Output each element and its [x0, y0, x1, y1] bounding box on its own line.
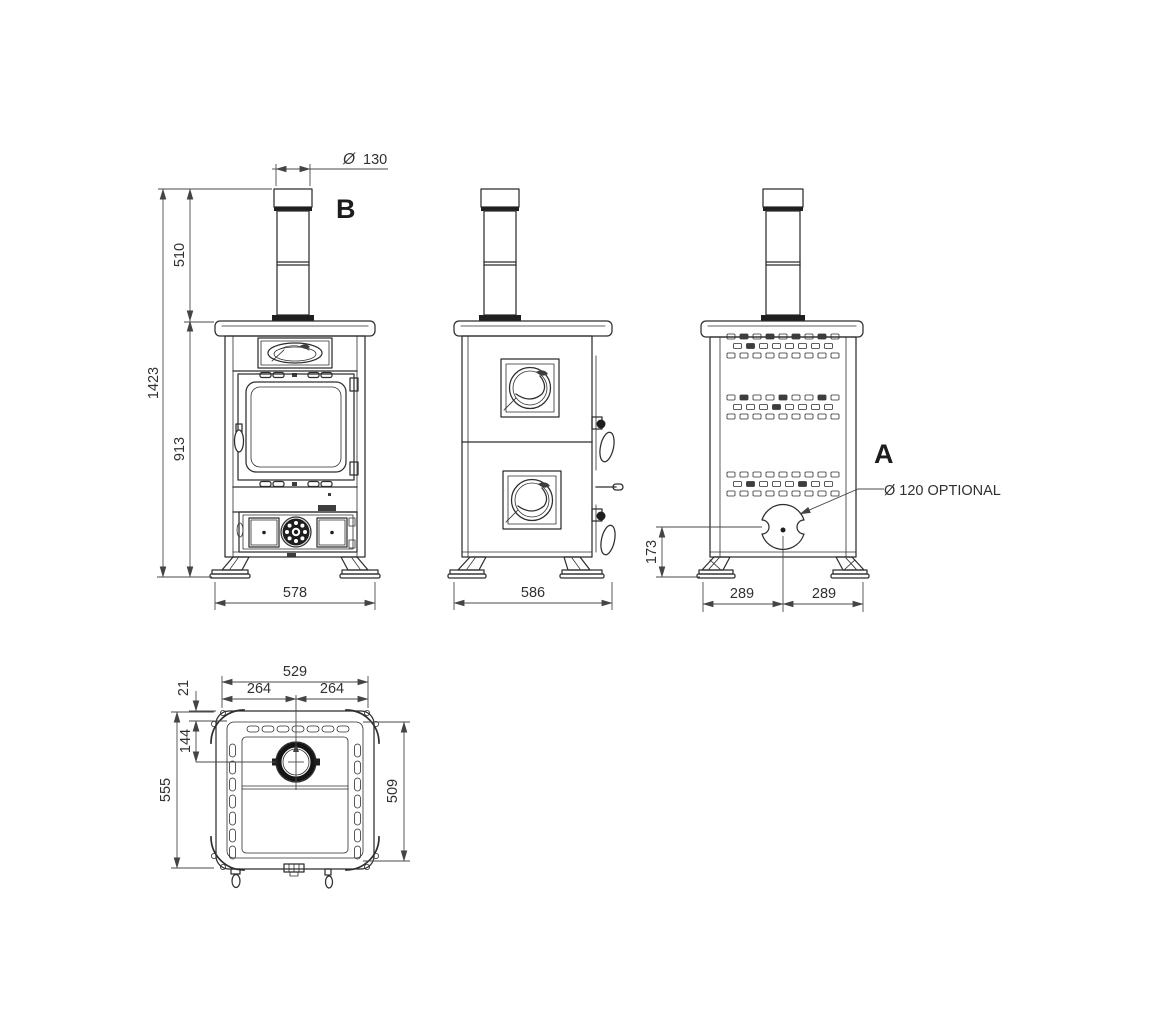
dim-outlet-left: 289	[730, 586, 754, 602]
technical-drawing: Ø 130 B 1423 510 913 578	[0, 0, 1150, 1031]
back-view: 173 289 289 A Ø 120 OPTIONAL	[644, 189, 1001, 612]
dim-flue-diameter: 130	[363, 152, 387, 168]
drawing-sheet: Ø 130 B 1423 510 913 578	[0, 0, 1150, 1031]
dim-outlet-height: 173	[644, 540, 660, 564]
dim-body-depth: 509	[385, 779, 401, 803]
front-dimensions: Ø 130 B 1423 510 913 578	[146, 151, 388, 610]
dim-top-width: 529	[283, 664, 307, 680]
dim-body-height: 913	[172, 437, 188, 461]
front-ornament-panel	[258, 338, 332, 368]
front-chimney	[272, 189, 314, 321]
side-view: 586	[448, 189, 623, 610]
dim-front-width: 578	[283, 585, 307, 601]
back-vent-slots	[727, 334, 839, 496]
front-door	[238, 373, 358, 487]
dim-rim: 21	[176, 680, 192, 696]
side-lower-emblem	[503, 471, 561, 529]
side-chimney	[479, 189, 521, 321]
dim-outlet-right: 289	[812, 586, 836, 602]
top-handles	[231, 864, 333, 888]
outlet-note: Ø 120 OPTIONAL	[884, 483, 1001, 499]
back-chimney	[761, 189, 805, 321]
front-air-rosette	[281, 517, 311, 547]
dim-flue-left: 264	[247, 681, 271, 697]
side-top-plate	[454, 321, 612, 336]
top-frame	[211, 710, 379, 870]
dim-side-depth: 586	[521, 585, 545, 601]
side-legs	[448, 557, 604, 578]
back-body	[710, 337, 856, 557]
front-top-plate	[215, 321, 375, 336]
front-door-handle	[235, 424, 244, 452]
front-view: Ø 130 B 1423 510 913 578	[146, 151, 388, 610]
dim-flue-height: 510	[172, 243, 188, 267]
side-door-handles	[592, 417, 623, 556]
top-view: 529 264 264 21 144 555 509	[158, 664, 410, 888]
dim-total-height: 1423	[146, 367, 162, 399]
side-upper-emblem	[501, 359, 559, 417]
section-label-a: A	[874, 439, 894, 469]
side-dimensions: 586	[454, 582, 612, 610]
back-dimensions: 173 289 289 A Ø 120 OPTIONAL	[644, 439, 1001, 612]
dim-flue-right: 264	[320, 681, 344, 697]
front-legs	[210, 557, 380, 578]
dim-total-depth: 555	[158, 778, 174, 802]
section-label-b: B	[336, 194, 356, 224]
dim-flue-diameter-symbol: Ø	[342, 151, 356, 168]
dim-flue-back: 144	[178, 729, 194, 753]
